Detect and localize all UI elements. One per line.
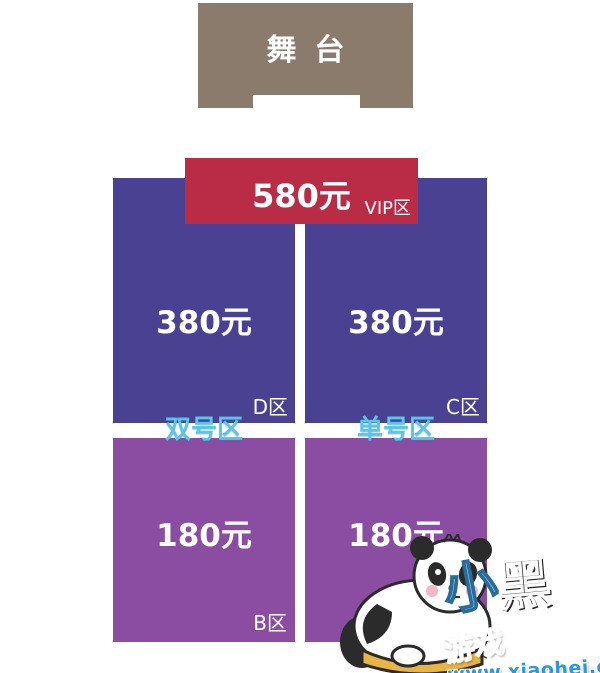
zone-vip[interactable]: 580元 VIP区 bbox=[185, 158, 418, 224]
zone-b-price: 180元 bbox=[113, 510, 295, 555]
stage-label: 舞台 bbox=[198, 25, 413, 69]
zone-c-price: 380元 bbox=[305, 297, 487, 342]
group-label-odd: 单号区 bbox=[305, 416, 487, 444]
zone-vip-label: VIP区 bbox=[365, 194, 411, 220]
zone-b-label: B区 bbox=[253, 607, 287, 636]
watermark-char-hei: 黑 bbox=[493, 538, 554, 621]
stage-notch bbox=[253, 95, 360, 108]
seating-chart: 舞台 380元 D区 380元 C区 180元 B区 180元 A区 580元 … bbox=[0, 0, 600, 673]
zone-d-price: 380元 bbox=[113, 297, 295, 342]
zone-b[interactable]: 180元 B区 bbox=[113, 438, 295, 642]
stage: 舞台 bbox=[198, 3, 413, 108]
watermark-logo: 小黑游戏 www.xiaohei.com bbox=[440, 536, 600, 673]
group-label-even: 双号区 bbox=[113, 416, 295, 444]
